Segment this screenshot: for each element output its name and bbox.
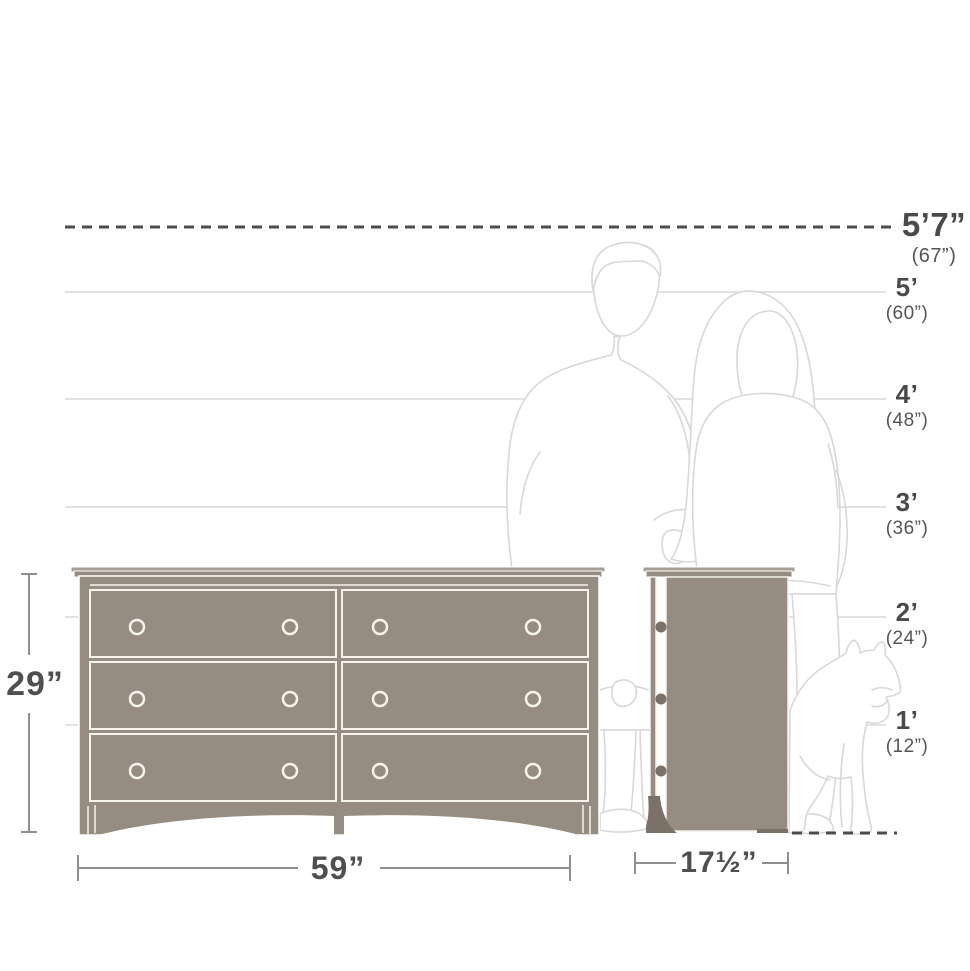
side-panel [666,577,788,831]
height-label-inches: (12”) [857,737,957,757]
height-label-4ft: 4’ (48”) [857,381,957,431]
height-label-inches: (48”) [857,411,957,431]
height-label-5ft7: 5’7” (67”) [869,208,970,267]
height-label-feet: 4’ [857,381,957,408]
dresser-side-view [643,567,795,833]
side-top-lip [646,571,792,577]
height-label-feet: 3’ [857,489,957,516]
man-shoe [600,809,648,832]
dresser-height-label: 29” [2,665,68,704]
side-drawer-strip [650,577,656,832]
man-hand-right [612,680,637,706]
drawer [342,590,588,657]
diagram-artwork [0,0,970,971]
height-label-2ft: 2’ (24”) [857,599,957,649]
dresser-depth-label: 17½” [662,846,776,880]
dresser-width-label: 59” [288,850,388,887]
height-label-inches: (24”) [857,629,957,649]
height-label-inches: (60”) [857,304,957,324]
drawer [90,590,336,657]
height-label-feet: 1’ [857,707,957,734]
dimension-diagram: 5’7” (67”) 5’ (60”) 4’ (48”) 3’ (36”) 2’… [0,0,970,971]
drawer [342,662,588,729]
side-knob [656,766,667,777]
drawer [90,662,336,729]
side-knob [656,694,667,705]
drawer [90,734,336,801]
height-label-feet: 5’ [857,274,957,301]
dresser-front-view [71,567,605,836]
woman-torso [693,393,840,594]
height-label-feet: 5’7” [869,208,970,243]
drawer [342,734,588,801]
height-label-5ft: 5’ (60”) [857,274,957,324]
height-label-feet: 2’ [857,599,957,626]
height-label-inches: (36”) [857,519,957,539]
height-label-inches: (67”) [869,246,970,267]
side-gap [656,577,666,833]
side-knob [656,622,667,633]
height-label-3ft: 3’ (36”) [857,489,957,539]
height-label-1ft: 1’ (12”) [857,707,957,757]
side-foot-right [757,829,788,833]
